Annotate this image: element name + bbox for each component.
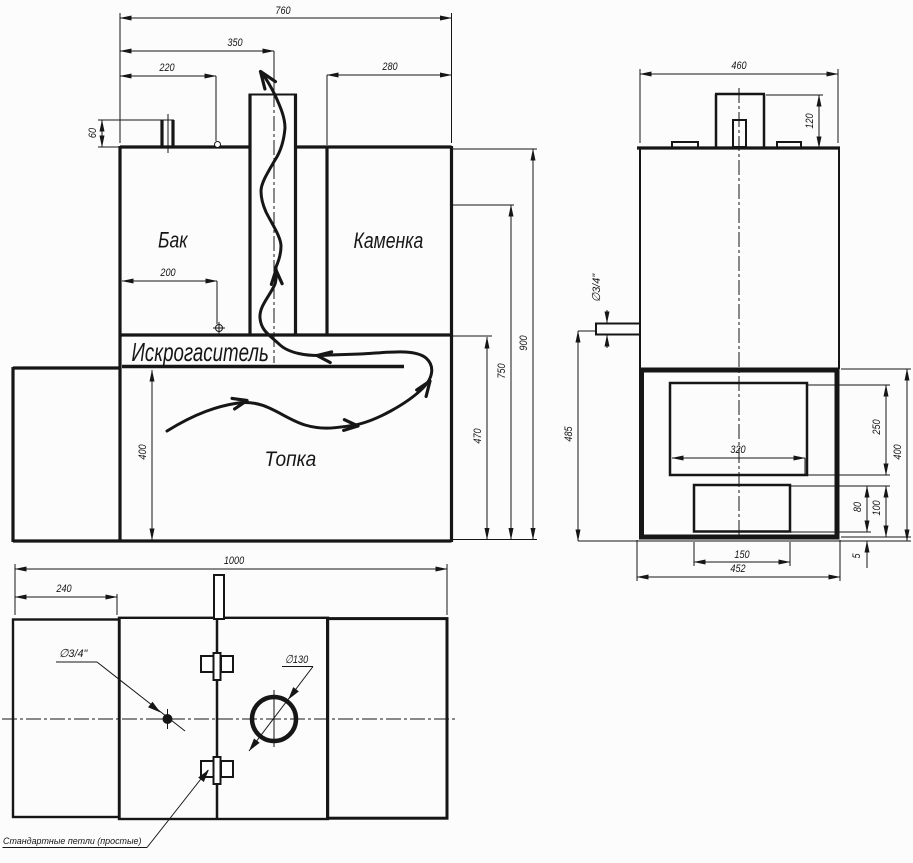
svg-text:485: 485 [563,426,575,441]
svg-text:∅3/4": ∅3/4" [591,273,603,302]
svg-text:400: 400 [137,444,149,459]
svg-text:760: 760 [275,5,290,17]
svg-text:Искрогаситель: Искрогаситель [132,337,269,367]
svg-text:1000: 1000 [224,555,245,567]
svg-text:900: 900 [518,335,530,350]
svg-text:Топка: Топка [265,448,317,471]
svg-text:320: 320 [730,444,745,456]
svg-text:240: 240 [56,583,72,595]
svg-text:120: 120 [804,113,816,128]
svg-text:452: 452 [730,563,745,575]
svg-text:80: 80 [852,502,864,512]
svg-text:350: 350 [227,37,242,49]
svg-text:750: 750 [496,363,508,378]
svg-text:∅3/4": ∅3/4" [59,648,88,660]
svg-text:∅130: ∅130 [285,654,308,666]
svg-text:Бак: Бак [158,229,189,253]
svg-text:460: 460 [731,60,746,72]
svg-text:220: 220 [159,62,175,74]
svg-text:280: 280 [382,61,398,73]
svg-text:5: 5 [851,553,863,558]
svg-text:200: 200 [160,267,176,279]
svg-text:250: 250 [871,419,883,435]
svg-text:60: 60 [87,128,99,138]
svg-text:Каменка: Каменка [354,229,424,253]
svg-text:Стандартные петли (простые): Стандартные петли (простые) [3,836,141,846]
svg-text:100: 100 [871,500,883,515]
svg-text:470: 470 [472,428,484,443]
svg-text:400: 400 [892,444,904,459]
svg-text:150: 150 [734,549,749,561]
